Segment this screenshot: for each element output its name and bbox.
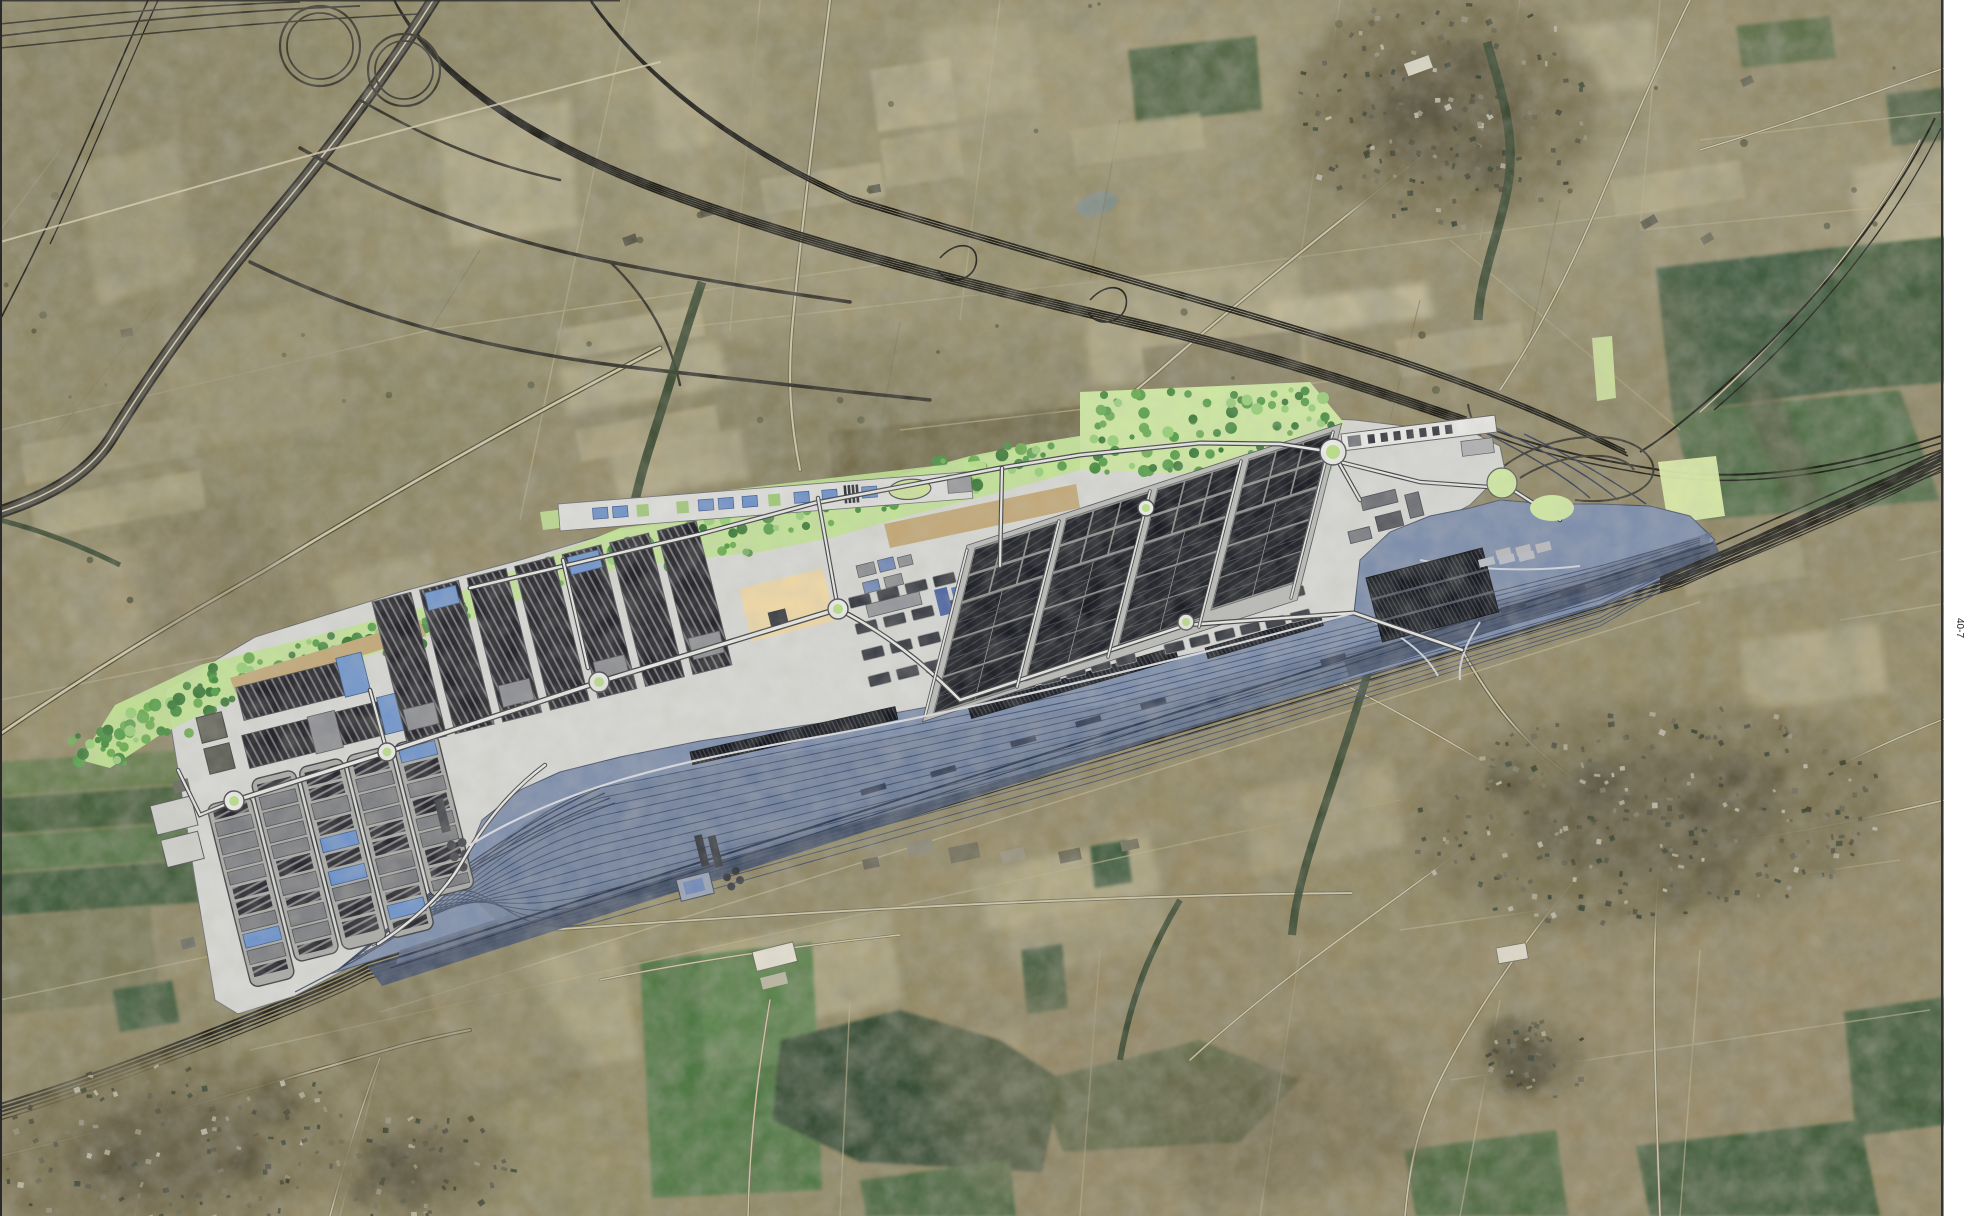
- svg-text:40-7: 40-7: [1954, 618, 1965, 638]
